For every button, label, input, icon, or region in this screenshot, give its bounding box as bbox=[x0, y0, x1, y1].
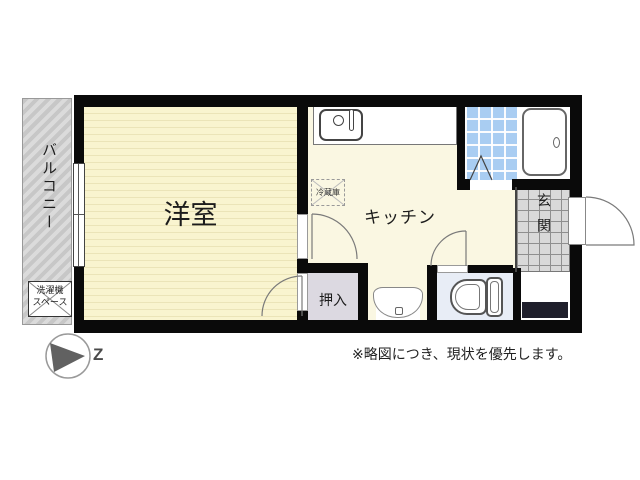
door-opening-kitchen bbox=[297, 214, 308, 259]
toilet-seat-icon bbox=[455, 284, 480, 310]
floorplan-canvas: バルコニー 洗濯機 スペース bbox=[0, 0, 640, 480]
wall-left-upper bbox=[74, 95, 84, 163]
entrance-edge-line bbox=[515, 187, 517, 272]
balcony-label: バルコニー bbox=[38, 142, 59, 232]
entrance-door-leaf bbox=[568, 197, 586, 245]
wall-partition-upper bbox=[297, 107, 308, 214]
entrance-step bbox=[522, 302, 568, 318]
closet-label: 押入 bbox=[308, 290, 358, 310]
entrance-label: 玄関 bbox=[534, 193, 554, 243]
toilet-tank-lid-icon bbox=[490, 281, 499, 313]
washer-space-label: 洗濯機 スペース bbox=[28, 285, 72, 308]
compass-north-label: Z bbox=[93, 345, 103, 365]
bathtub-icon bbox=[522, 108, 567, 176]
disclaimer-note: ※略図につき、現状を優先します。 bbox=[352, 344, 571, 364]
washer-space-label-line2: スペース bbox=[28, 297, 72, 309]
door-opening-closet bbox=[297, 273, 308, 311]
wall-bath-left bbox=[457, 107, 465, 190]
wall-bath-bottom-left bbox=[457, 179, 470, 190]
wall-bottom bbox=[74, 320, 582, 333]
washer-space-label-line1: 洗濯機 bbox=[28, 285, 72, 297]
window-divider-line bbox=[74, 214, 84, 215]
washbasin-faucet-icon bbox=[395, 307, 403, 315]
window-sash-line bbox=[78, 164, 79, 266]
wall-partition-lower bbox=[297, 311, 308, 322]
faucet-lever-icon bbox=[349, 109, 354, 131]
wall-closet-right bbox=[358, 263, 368, 322]
fridge-label: 冷蔵庫 bbox=[311, 187, 345, 198]
bathtub-drain-icon bbox=[553, 137, 560, 148]
toilet-bowl-icon bbox=[450, 279, 487, 315]
compass-icon bbox=[46, 334, 90, 378]
kitchen-counter bbox=[313, 104, 457, 145]
door-opening-toilet bbox=[437, 265, 468, 273]
faucet-base-icon bbox=[333, 115, 344, 126]
wall-bath-bottom-right bbox=[512, 179, 582, 190]
kitchen-hall-floor bbox=[457, 190, 515, 268]
wall-left-lower bbox=[74, 267, 84, 333]
wall-toilet-left bbox=[427, 265, 437, 322]
wall-toilet-top bbox=[468, 265, 513, 273]
western-room-label: 洋室 bbox=[84, 193, 297, 232]
entrance-landing bbox=[521, 272, 570, 302]
kitchen-label: キッチン bbox=[330, 203, 470, 228]
bathroom-threshold bbox=[470, 180, 512, 190]
toilet-tank-icon bbox=[486, 277, 503, 317]
door-swing-entrance bbox=[586, 197, 634, 245]
wall-right-lower bbox=[570, 245, 582, 333]
wall-toilet-right bbox=[513, 268, 521, 322]
bathroom-tile-floor bbox=[465, 105, 517, 182]
wall-top bbox=[74, 95, 582, 107]
